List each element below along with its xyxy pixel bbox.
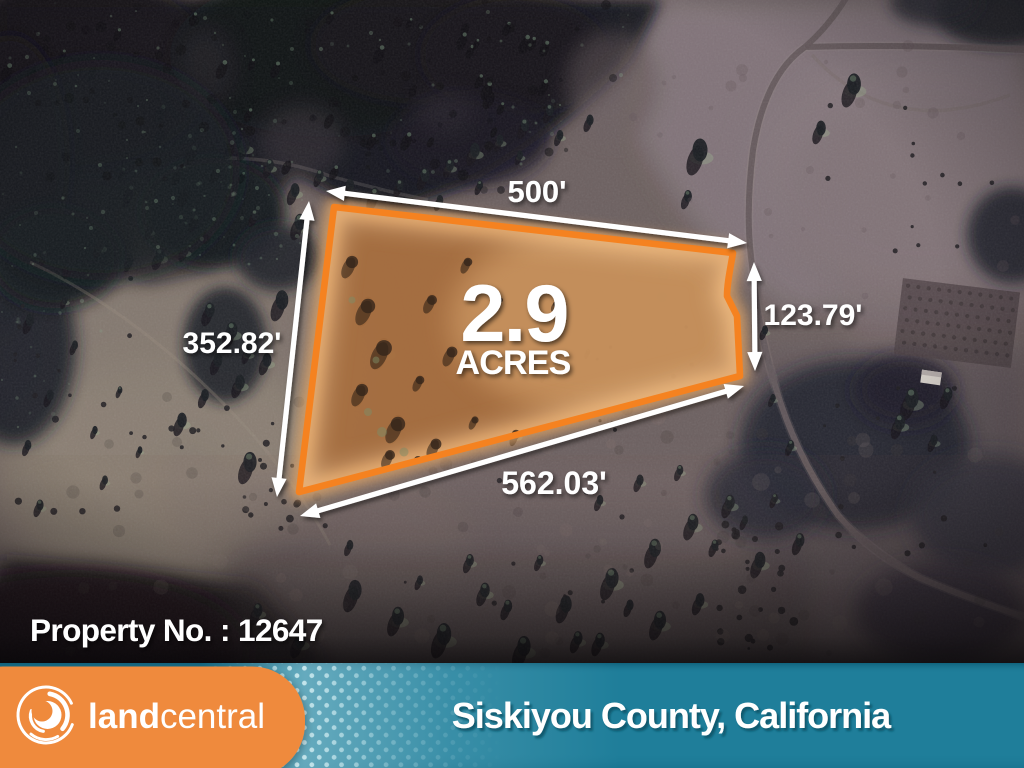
svg-text:Siskiyou County, California: Siskiyou County, California: [452, 695, 892, 736]
svg-text:123.79': 123.79': [764, 299, 863, 332]
svg-text:landcentral: landcentral: [88, 697, 265, 736]
svg-text:562.03': 562.03': [501, 465, 606, 501]
svg-text:352.82': 352.82': [183, 327, 282, 360]
svg-text:500': 500': [507, 174, 566, 209]
svg-text:Property No. : 12647: Property No. : 12647: [30, 612, 323, 648]
svg-text:ACRES: ACRES: [455, 344, 570, 382]
